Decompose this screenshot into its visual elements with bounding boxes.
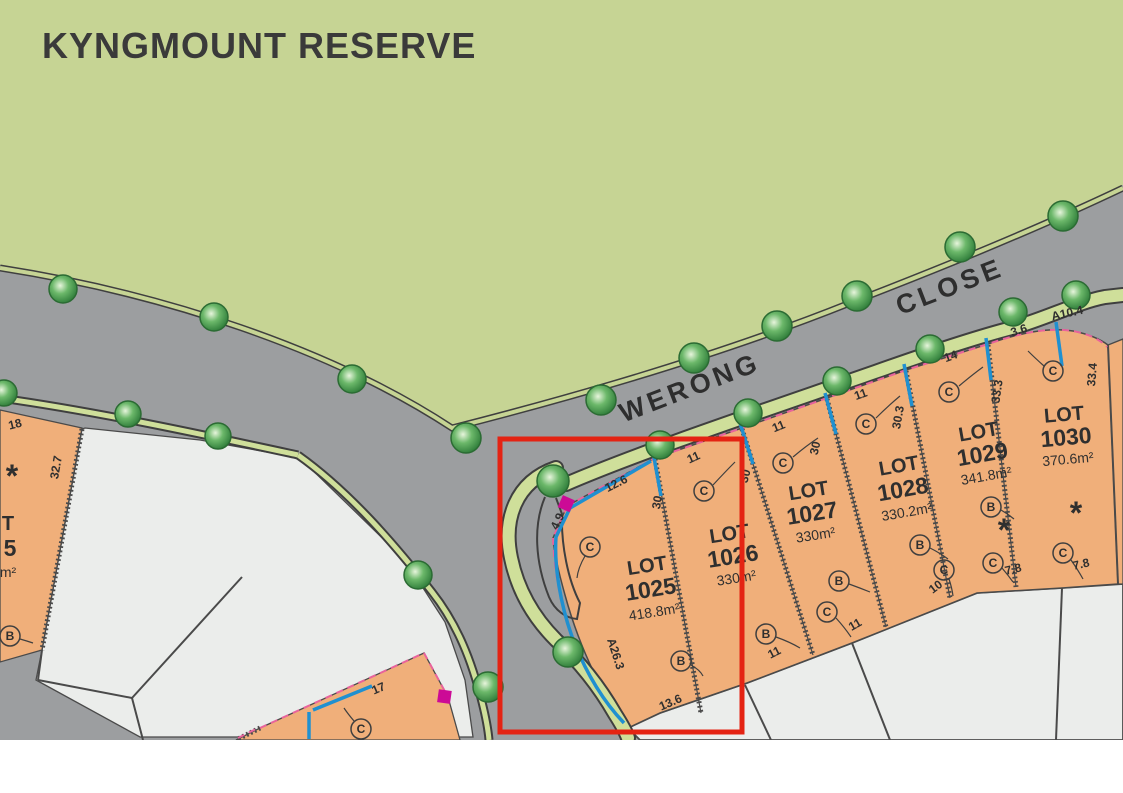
marker-letter: C bbox=[357, 722, 366, 736]
tree-icon bbox=[205, 423, 231, 449]
tree-icon bbox=[537, 465, 569, 497]
bottom-margin bbox=[0, 740, 1123, 793]
marker-letter: B bbox=[987, 500, 996, 514]
marker-letter: C bbox=[989, 556, 998, 570]
tree-icon bbox=[945, 232, 975, 262]
tree-icon bbox=[451, 423, 481, 453]
tree-icon bbox=[646, 431, 674, 459]
marker-letter: C bbox=[940, 563, 949, 577]
tree-icon bbox=[115, 401, 141, 427]
marker-letter: C bbox=[586, 540, 595, 554]
tree-icon bbox=[1048, 201, 1078, 231]
marker-letter: C bbox=[1049, 364, 1058, 378]
svg-text:m²: m² bbox=[0, 564, 16, 580]
star-symbol: * bbox=[998, 512, 1011, 548]
svg-text:5: 5 bbox=[4, 535, 17, 561]
tree-icon bbox=[916, 335, 944, 363]
marker-letter: B bbox=[677, 654, 686, 668]
marker-letter: C bbox=[700, 484, 709, 498]
marker-letter: C bbox=[823, 605, 832, 619]
marker-letter: B bbox=[835, 574, 844, 588]
marker-letter: C bbox=[862, 417, 871, 431]
marker-letter: C bbox=[1059, 546, 1068, 560]
tree-icon bbox=[338, 365, 366, 393]
tree-icon bbox=[823, 367, 851, 395]
marker-letter: B bbox=[6, 629, 15, 643]
tree-icon bbox=[586, 385, 616, 415]
tree-icon bbox=[734, 399, 762, 427]
svg-text:T: T bbox=[2, 513, 14, 535]
dim-side-1030: 33.4 bbox=[1084, 362, 1100, 387]
tree-icon bbox=[842, 281, 872, 311]
tree-icon bbox=[553, 637, 583, 667]
star-symbol: * bbox=[6, 458, 19, 494]
reserve-name: KYNGMOUNT RESERVE bbox=[42, 25, 476, 66]
tree-icon bbox=[200, 303, 228, 331]
subdivision-plan: C B C B C B C C B C C B C C C B C * * * … bbox=[0, 0, 1123, 793]
marker-letter: B bbox=[916, 538, 925, 552]
tree-icon bbox=[762, 311, 792, 341]
tree-icon bbox=[49, 275, 77, 303]
marker-letter: B bbox=[762, 627, 771, 641]
dim-depth-1025-1026: 30 bbox=[649, 494, 665, 510]
marker-letter: C bbox=[945, 385, 954, 399]
svg-text:1030: 1030 bbox=[1039, 422, 1092, 452]
marker-letter: C bbox=[779, 456, 788, 470]
star-symbol: * bbox=[1070, 495, 1083, 531]
tree-icon bbox=[404, 561, 432, 589]
